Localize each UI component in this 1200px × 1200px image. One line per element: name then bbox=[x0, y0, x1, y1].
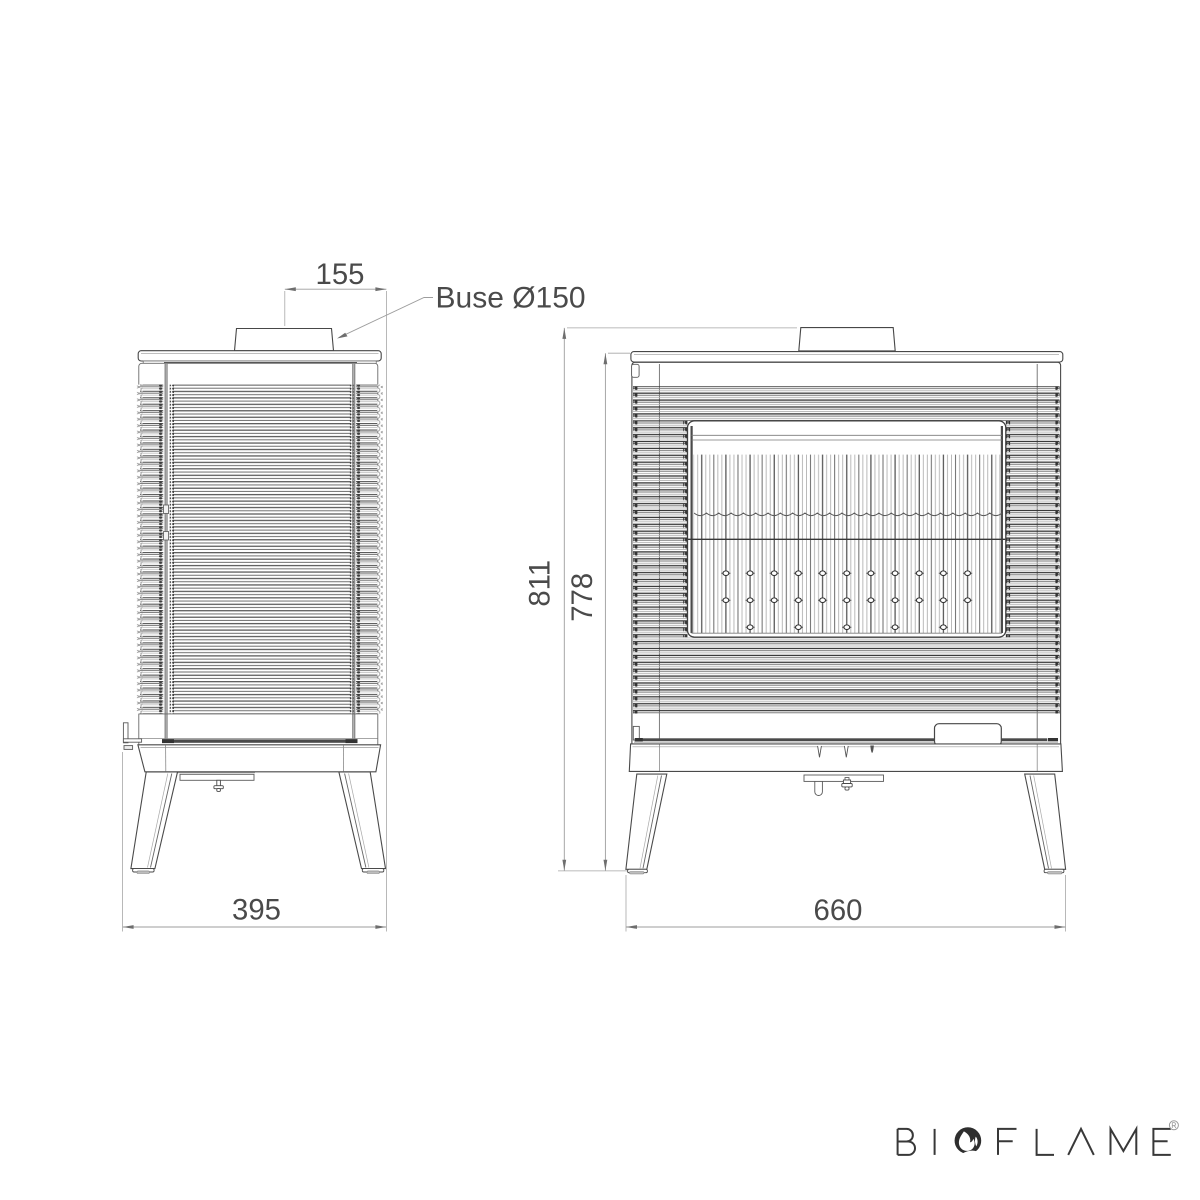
svg-text:778: 778 bbox=[566, 573, 599, 622]
svg-text:660: 660 bbox=[814, 894, 863, 927]
svg-text:155: 155 bbox=[316, 258, 365, 291]
svg-text:Buse Ø150: Buse Ø150 bbox=[436, 281, 586, 314]
svg-text:811: 811 bbox=[524, 560, 557, 607]
svg-text:395: 395 bbox=[232, 894, 281, 927]
